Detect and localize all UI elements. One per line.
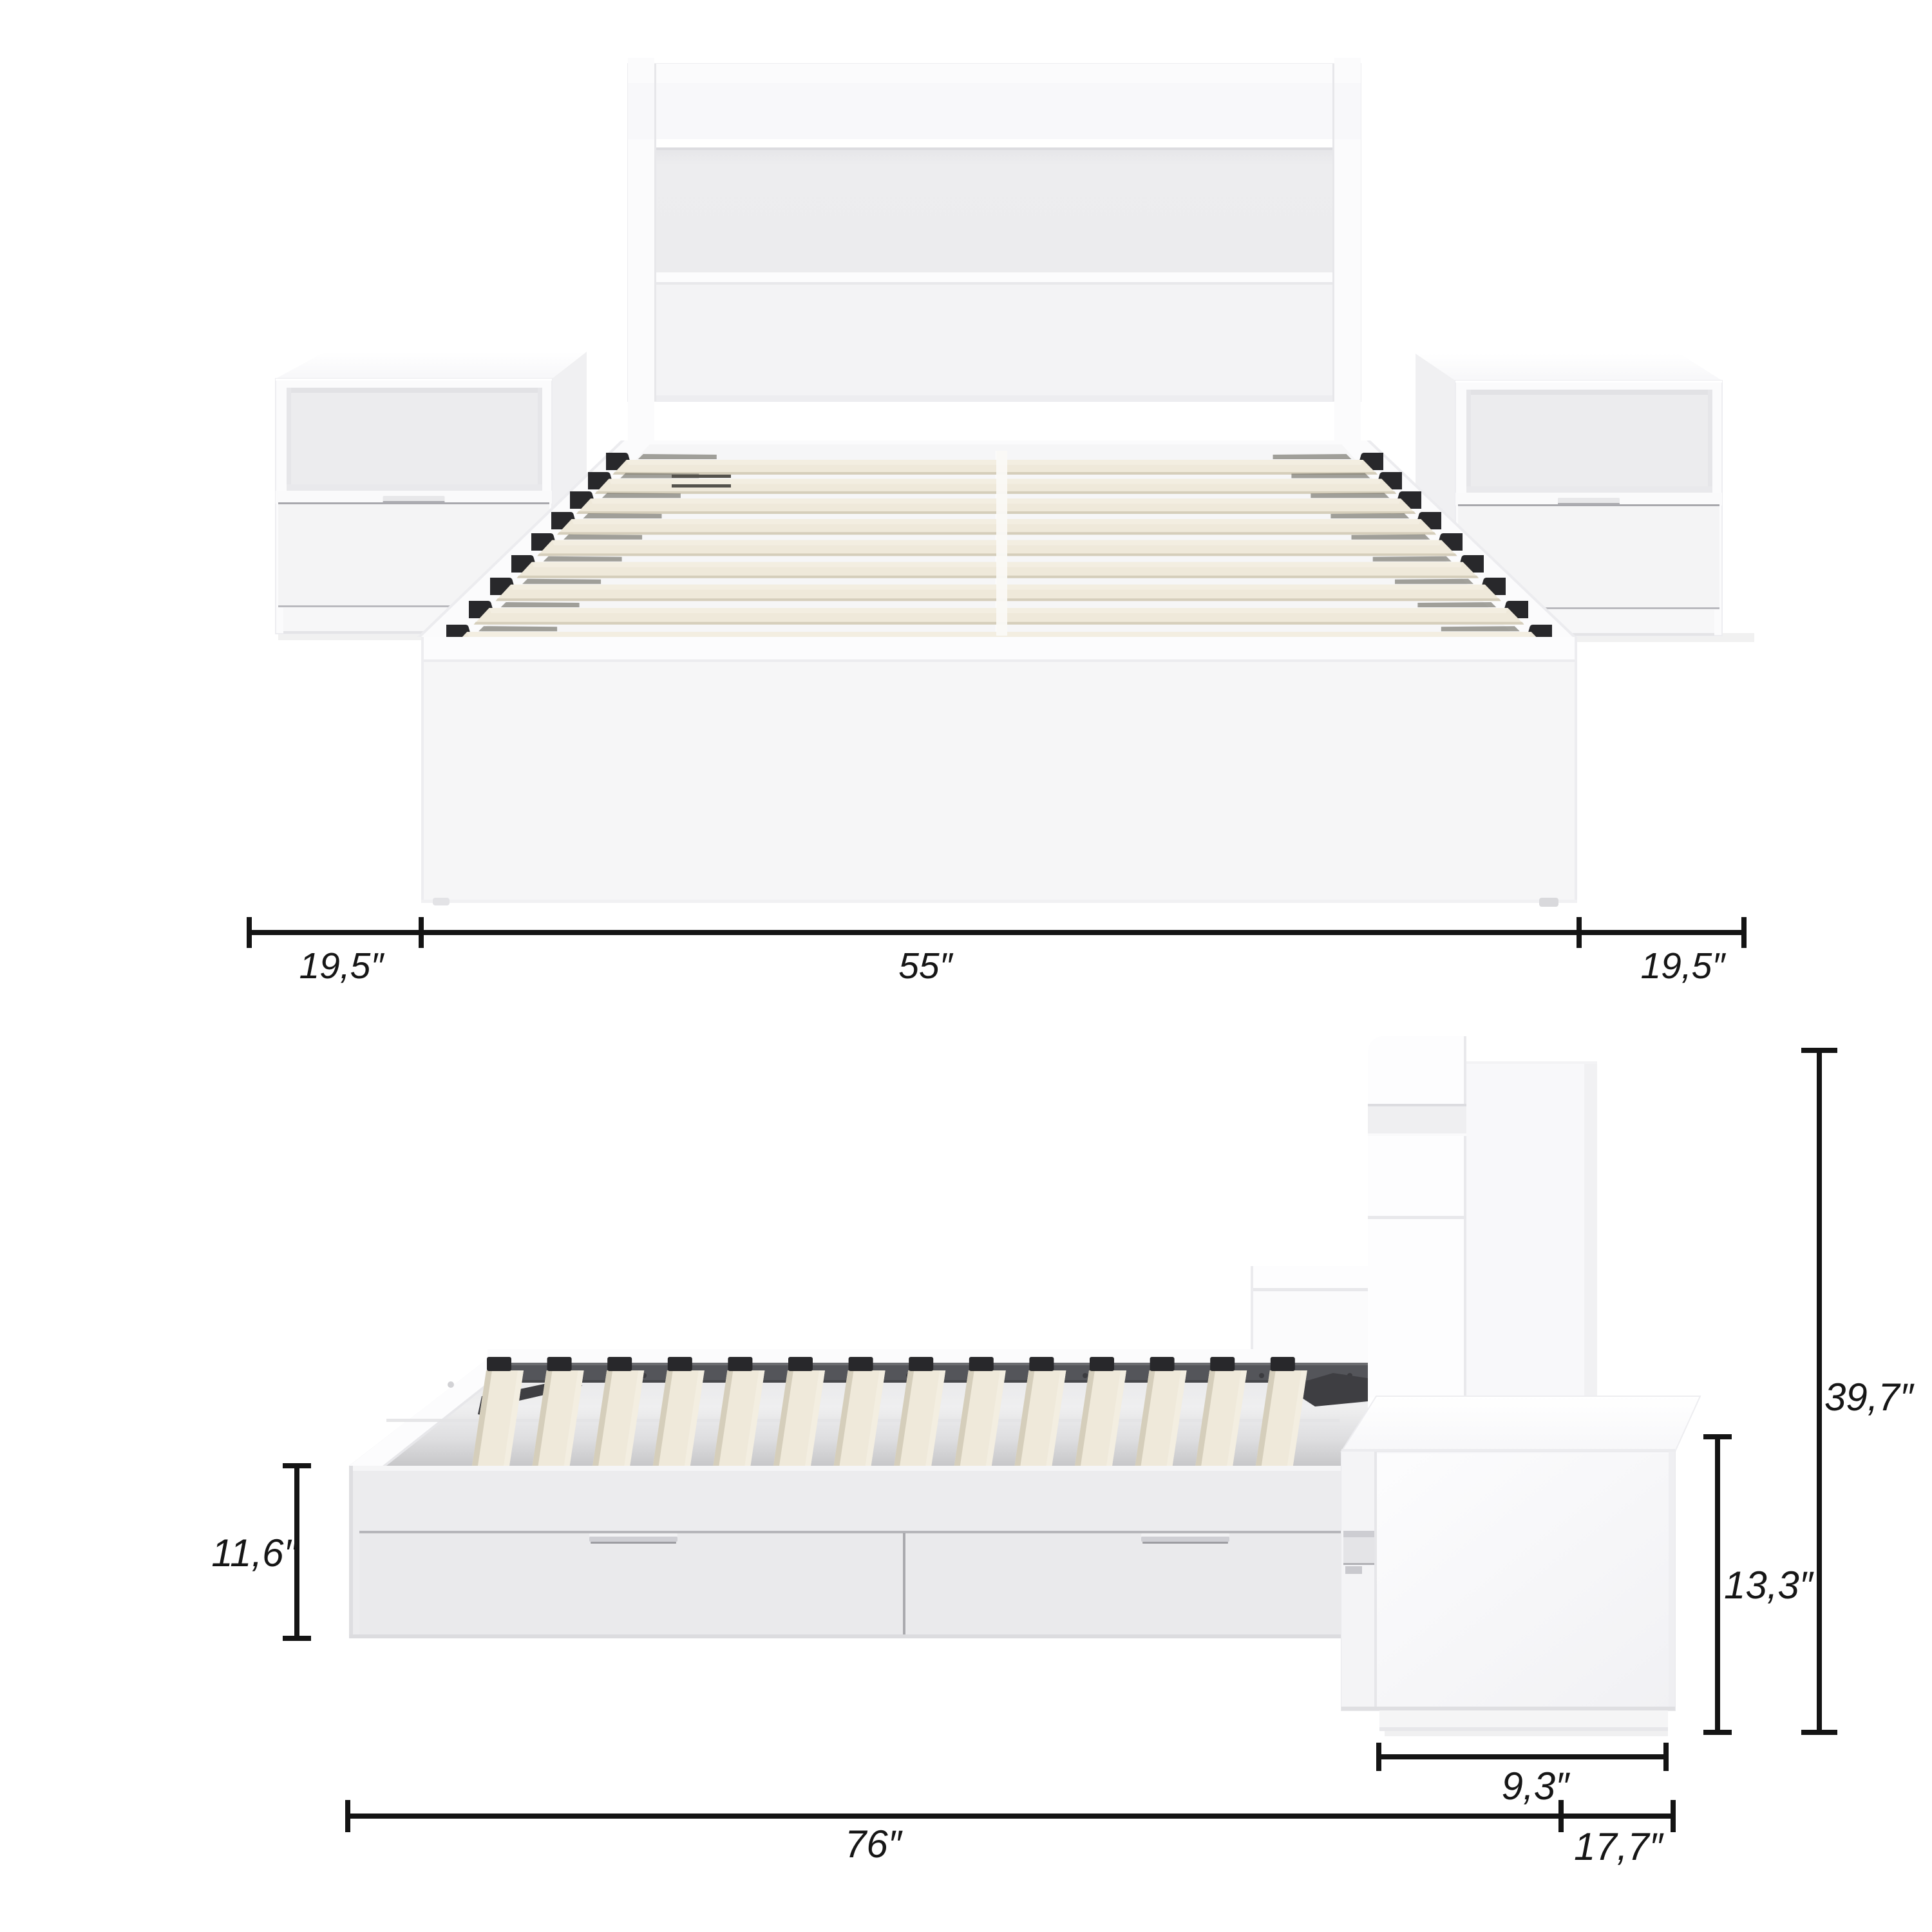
svg-text:55″: 55″: [898, 945, 953, 987]
svg-text:13,3″: 13,3″: [1724, 1564, 1814, 1607]
svg-text:11,6″: 11,6″: [211, 1531, 298, 1575]
svg-text:19,5″: 19,5″: [299, 945, 384, 987]
svg-text:17,7″: 17,7″: [1574, 1825, 1664, 1868]
svg-text:19,5″: 19,5″: [1640, 945, 1726, 987]
svg-text:39,7″: 39,7″: [1824, 1376, 1915, 1419]
svg-text:76″: 76″: [845, 1823, 903, 1866]
svg-text:9,3″: 9,3″: [1502, 1765, 1570, 1808]
